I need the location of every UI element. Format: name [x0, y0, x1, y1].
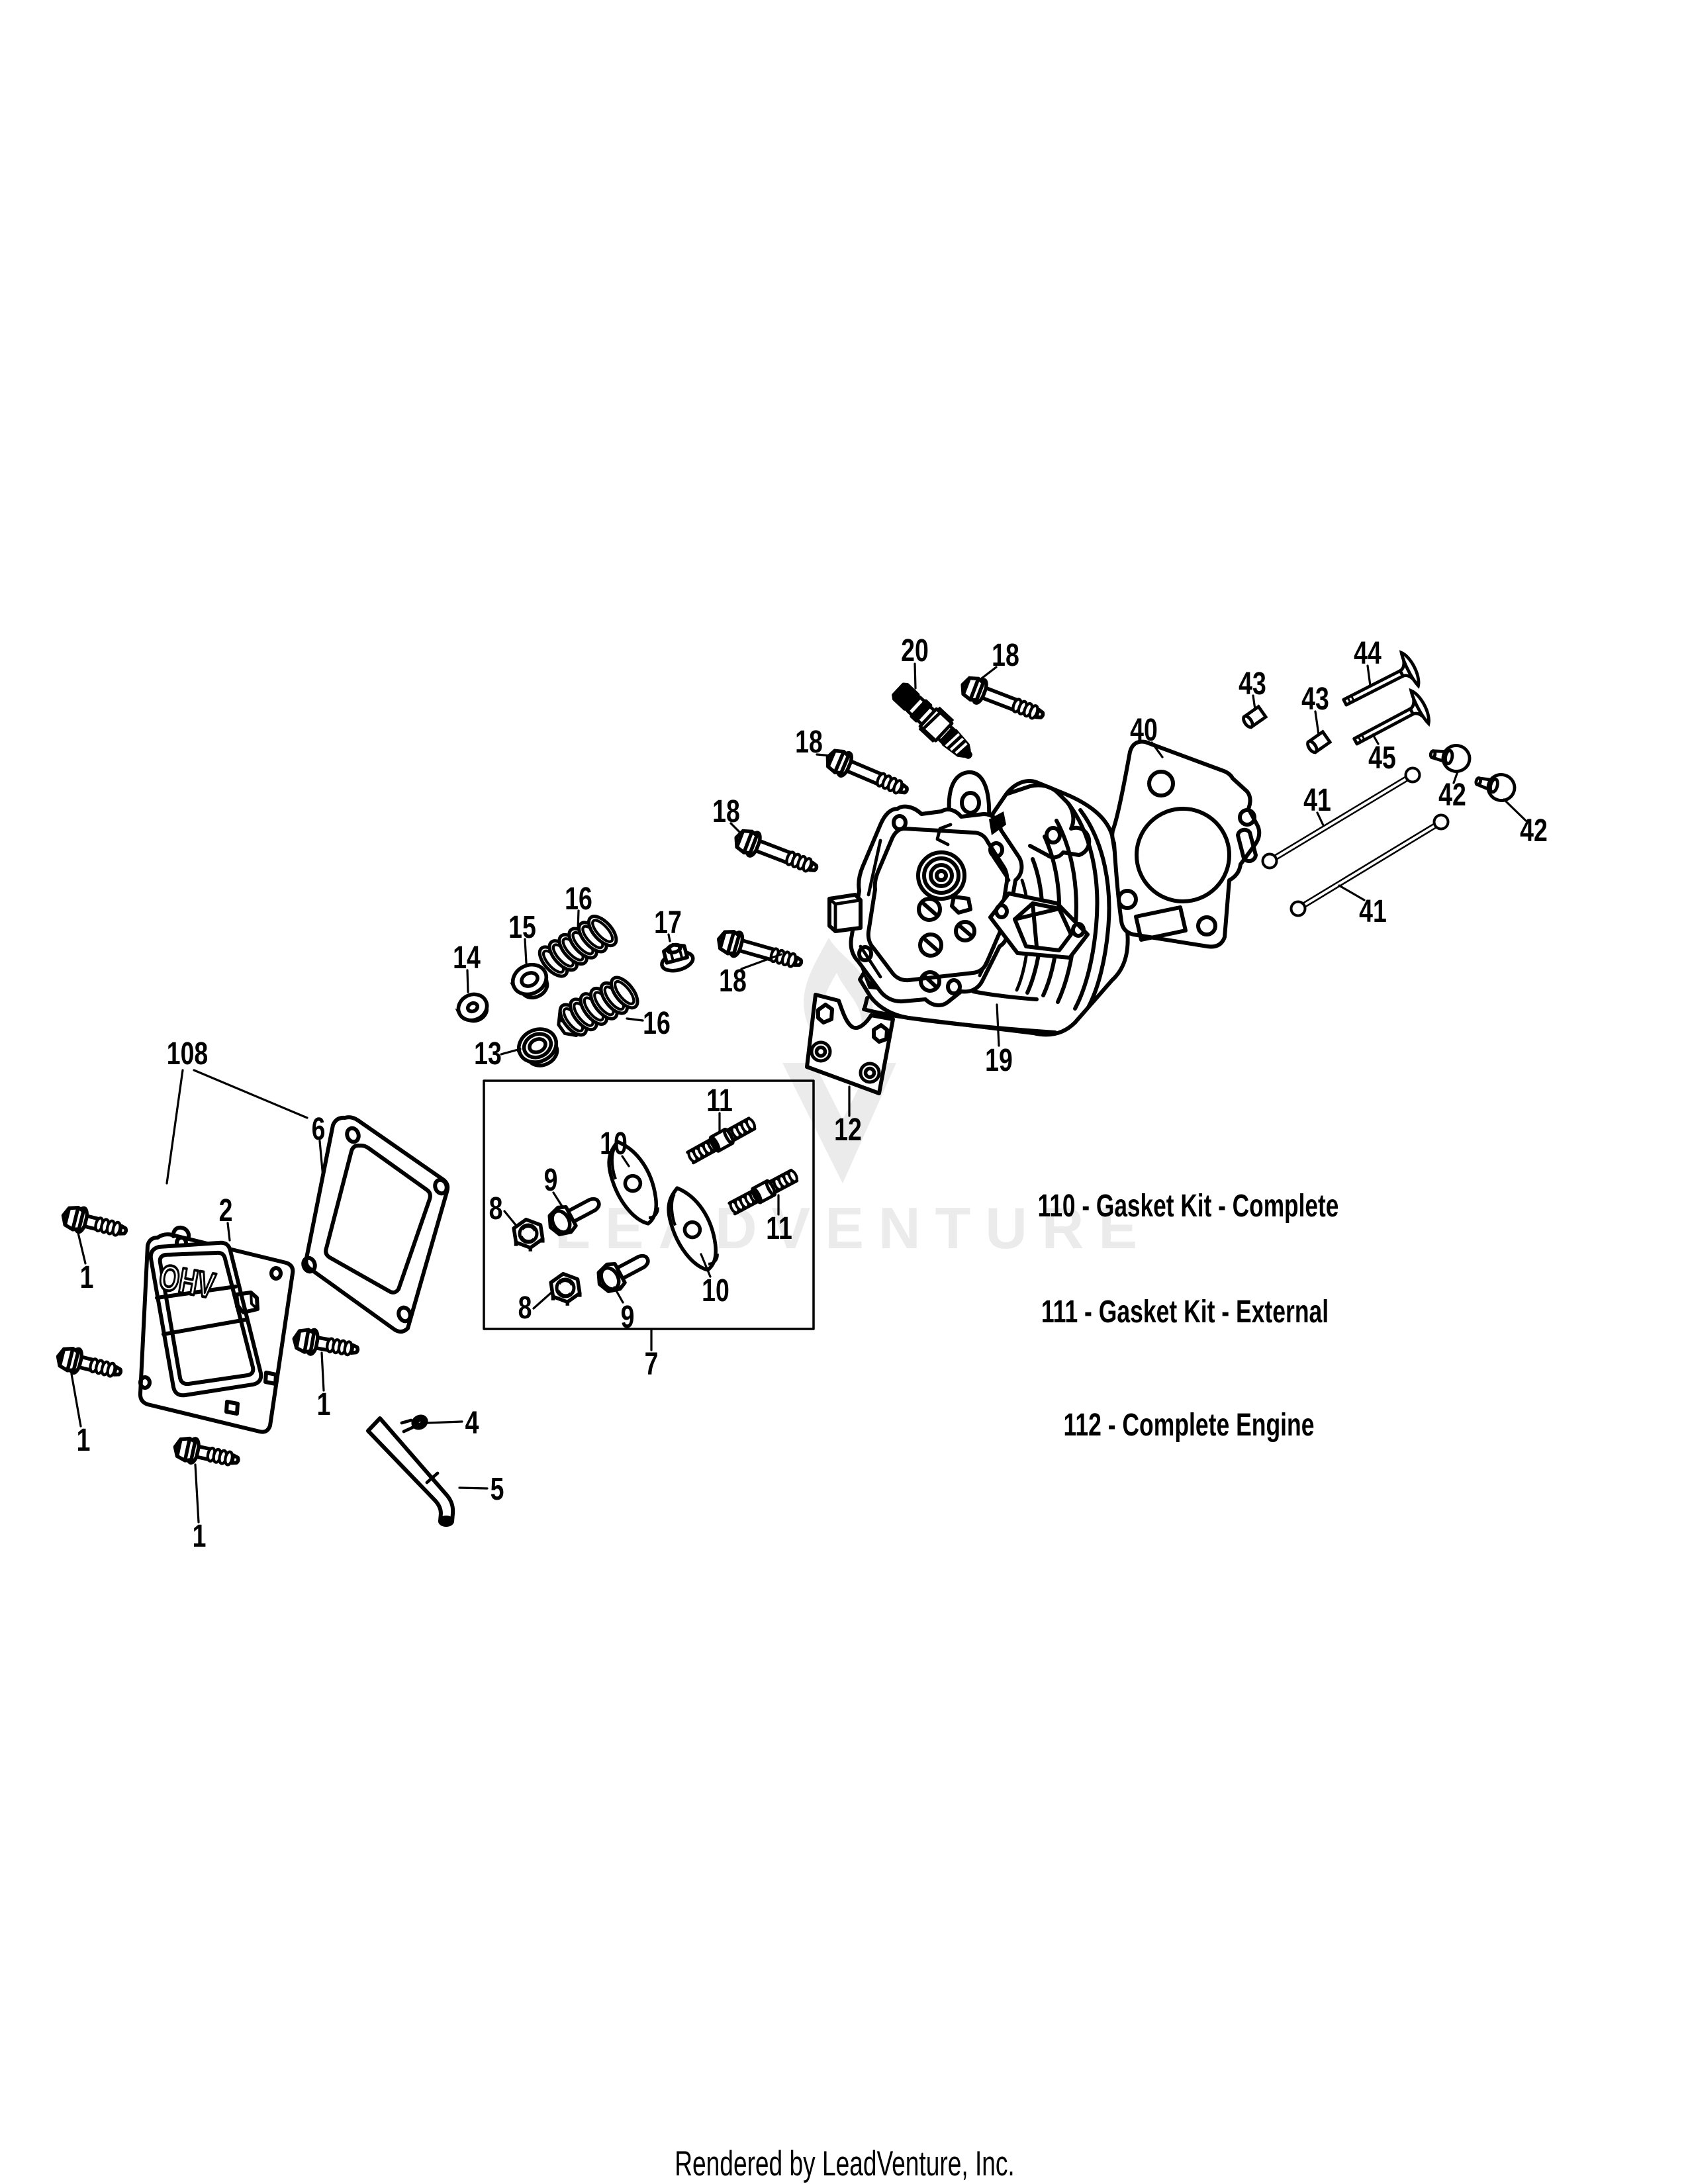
svg-text:9: 9 — [621, 1300, 635, 1336]
svg-text:2: 2 — [219, 1193, 233, 1229]
svg-text:6: 6 — [312, 1112, 326, 1148]
svg-text:111 - Gasket Kit - External: 111 - Gasket Kit - External — [1041, 1294, 1329, 1329]
svg-text:18: 18 — [712, 794, 740, 830]
svg-text:11: 11 — [766, 1211, 792, 1247]
svg-text:Rendered by LeadVenture, Inc.: Rendered by LeadVenture, Inc. — [675, 2144, 1014, 2183]
svg-text:19: 19 — [985, 1043, 1013, 1079]
svg-text:40: 40 — [1130, 713, 1158, 749]
svg-text:42: 42 — [1520, 813, 1548, 849]
svg-text:8: 8 — [518, 1291, 532, 1326]
svg-text:1: 1 — [80, 1260, 94, 1296]
svg-text:11: 11 — [706, 1083, 733, 1119]
svg-text:1: 1 — [193, 1519, 207, 1555]
svg-text:17: 17 — [654, 905, 682, 941]
svg-text:8: 8 — [489, 1191, 503, 1227]
svg-text:41: 41 — [1303, 783, 1331, 819]
svg-text:16: 16 — [565, 882, 592, 917]
svg-text:5: 5 — [491, 1472, 504, 1508]
svg-text:1: 1 — [317, 1387, 331, 1423]
svg-text:10: 10 — [600, 1126, 628, 1162]
svg-text:18: 18 — [992, 638, 1019, 674]
svg-text:20: 20 — [901, 633, 929, 669]
svg-text:41: 41 — [1359, 894, 1387, 930]
svg-text:42: 42 — [1438, 778, 1466, 813]
svg-text:44: 44 — [1354, 636, 1382, 672]
svg-text:10: 10 — [702, 1273, 729, 1309]
svg-text:14: 14 — [453, 940, 481, 976]
svg-text:18: 18 — [719, 964, 747, 999]
svg-text:15: 15 — [508, 910, 536, 946]
svg-text:9: 9 — [544, 1163, 558, 1199]
svg-text:4: 4 — [465, 1406, 479, 1441]
svg-text:110 - Gasket Kit - Complete: 110 - Gasket Kit - Complete — [1038, 1188, 1339, 1224]
svg-text:112 - Complete Engine: 112 - Complete Engine — [1064, 1407, 1315, 1442]
svg-text:18: 18 — [795, 725, 823, 760]
svg-text:45: 45 — [1368, 741, 1396, 776]
svg-text:16: 16 — [643, 1006, 671, 1042]
svg-text:7: 7 — [645, 1347, 659, 1383]
svg-text:108: 108 — [167, 1036, 208, 1072]
svg-text:12: 12 — [834, 1113, 862, 1148]
svg-text:1: 1 — [77, 1423, 91, 1459]
svg-text:43: 43 — [1301, 682, 1329, 717]
svg-text:13: 13 — [474, 1036, 502, 1072]
svg-text:43: 43 — [1239, 666, 1266, 702]
